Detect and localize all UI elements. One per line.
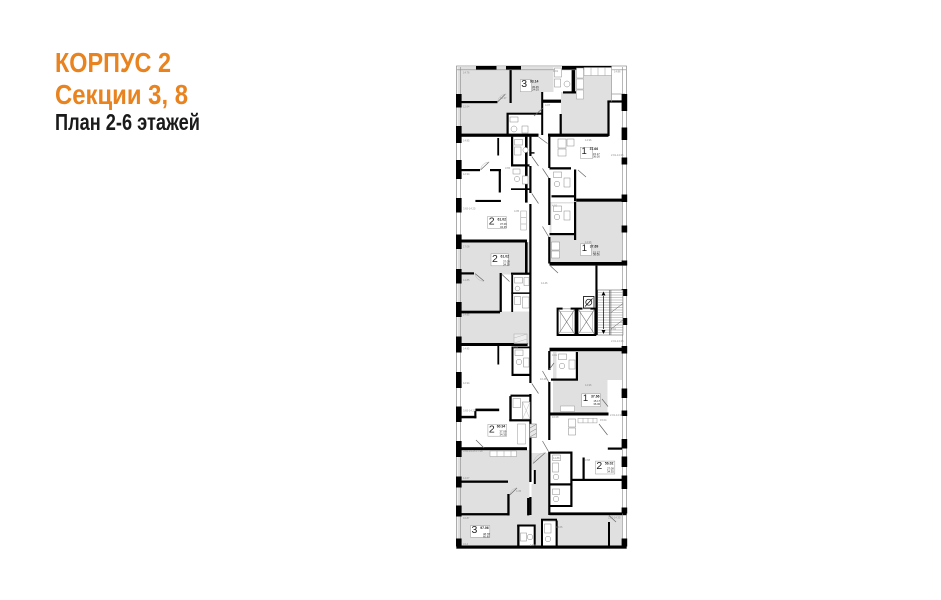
svg-text:2.91-14.35: 2.91-14.35 [611,153,624,157]
svg-text:14.06: 14.06 [556,525,563,529]
svg-text:КОРПУС 2: КОРПУС 2 [55,47,171,78]
svg-text:16.37: 16.37 [500,96,507,100]
svg-text:1: 1 [583,393,588,404]
svg-text:1: 1 [582,243,587,254]
svg-text:14.85: 14.85 [463,347,470,351]
svg-text:36.00: 36.00 [593,253,600,257]
svg-text:2.01-14.35: 2.01-14.35 [608,516,621,520]
svg-text:61.02: 61.02 [498,217,507,221]
svg-text:56.02: 56.02 [605,462,614,466]
svg-text:12.94: 12.94 [463,381,470,385]
svg-text:60.94: 60.94 [497,425,506,429]
svg-text:14.96: 14.96 [585,138,592,142]
svg-text:4.91: 4.91 [552,353,558,357]
svg-text:14.86: 14.86 [614,70,621,74]
svg-text:34.35: 34.35 [607,470,614,474]
svg-text:93.14: 93.14 [530,80,539,84]
svg-text:14.96: 14.96 [585,383,592,387]
svg-text:16.87: 16.87 [463,516,470,520]
svg-text:2.91: 2.91 [611,327,617,331]
svg-text:24.03: 24.03 [532,88,539,92]
svg-text:36.00: 36.00 [593,402,600,406]
svg-text:2.01-14.35: 2.01-14.35 [610,413,623,417]
svg-text:2: 2 [492,253,498,265]
svg-text:4.91: 4.91 [553,69,559,73]
svg-text:15.04: 15.04 [600,418,607,422]
svg-text:14.85: 14.85 [463,278,470,282]
svg-text:14.96: 14.96 [585,240,592,244]
svg-text:2.01-14.35: 2.01-14.35 [611,339,624,343]
svg-text:16.46: 16.46 [540,377,547,381]
svg-text:14.76: 14.76 [463,71,470,75]
svg-text:60.80: 60.80 [483,534,490,538]
svg-text:37.69: 37.69 [590,245,599,249]
svg-text:97.06: 97.06 [480,526,489,530]
svg-text:3: 3 [521,78,527,90]
svg-text:14.88: 14.88 [553,456,560,460]
svg-text:37.66: 37.66 [590,147,599,151]
svg-text:3.14: 3.14 [463,542,469,546]
svg-text:4.07: 4.07 [545,103,551,107]
svg-text:36.00: 36.00 [593,155,600,159]
svg-text:16.08: 16.08 [552,415,559,419]
svg-text:14.46: 14.46 [541,281,548,285]
svg-text:План 2-6 этажей: План 2-6 этажей [55,109,200,135]
svg-text:2: 2 [596,460,602,472]
svg-text:12.64: 12.64 [463,105,470,109]
svg-text:3.88: 3.88 [585,458,591,462]
svg-text:Секции 3, 8: Секции 3, 8 [55,79,188,110]
svg-text:14.05: 14.05 [530,543,537,547]
svg-text:34.35: 34.35 [500,225,507,229]
svg-text:17.08: 17.08 [463,245,470,249]
svg-text:4.91: 4.91 [552,204,558,208]
svg-text:4.05: 4.05 [513,345,519,349]
svg-text:3.65-14.25 17.08: 3.65-14.25 17.08 [463,449,483,453]
svg-text:14.85: 14.85 [463,139,470,143]
svg-text:3.65: 3.65 [505,166,511,170]
svg-text:14.07: 14.07 [463,476,470,480]
svg-text:4.35: 4.35 [516,489,522,493]
svg-text:34.35: 34.35 [500,433,507,437]
svg-text:3.65-14.25: 3.65-14.25 [463,207,476,211]
svg-text:1: 1 [582,146,587,157]
svg-text:12.94: 12.94 [463,172,470,176]
svg-text:2: 2 [489,216,495,228]
svg-text:61.02: 61.02 [501,255,510,259]
svg-text:3: 3 [472,524,478,536]
svg-text:37.66: 37.66 [591,395,600,399]
svg-text:34.35: 34.35 [503,262,510,266]
svg-text:14.85: 14.85 [463,313,470,317]
svg-text:3.65-14.25: 3.65-14.25 [463,409,476,413]
svg-text:4.05: 4.05 [514,209,520,213]
svg-text:2: 2 [489,424,495,436]
